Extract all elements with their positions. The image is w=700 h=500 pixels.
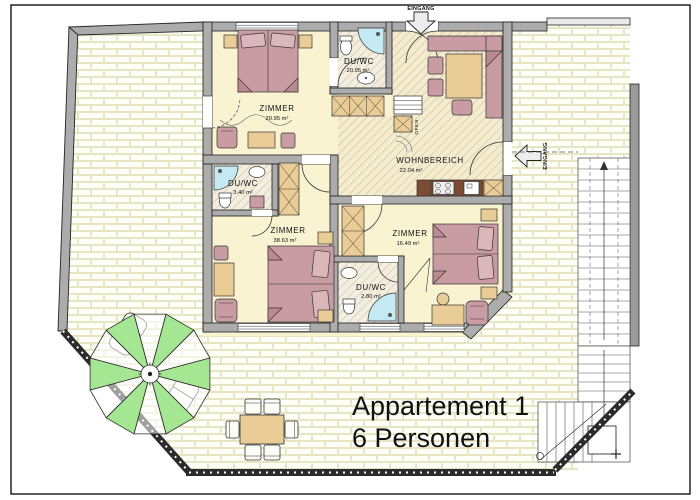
entrance-right-label: EINGANG (543, 142, 549, 169)
floor-plan-page: EINGANG EINGANG (0, 0, 700, 500)
room-label-zimmer-sw-area: 38.63 m² (274, 238, 297, 244)
room-label-zimmer-se-area: 16.49 m² (397, 241, 420, 247)
room-label-wohnbereich-area: 22.04 m² (400, 168, 423, 174)
floor-plan-svg: EINGANG EINGANG (0, 0, 700, 500)
room-label-duwc-top-name: DU/WC (344, 57, 374, 66)
room-label-duwc-top-area: 20.95 m² (347, 68, 370, 74)
room-label-duwc-south-area: 2.80 m² (361, 294, 381, 300)
room-label-wohnbereich-name: WOHNBEREICH (396, 156, 464, 165)
oven-label: OFEN (414, 119, 420, 134)
room-label-zimmer-nw-name: ZIMMER (259, 104, 294, 113)
room-label-zimmer-sw-name: ZIMMER (270, 226, 305, 235)
room-label-duwc-west-area: 3.40 m² (233, 190, 253, 196)
top-right-railing (547, 18, 630, 25)
room-label-zimmer-nw-area: 20.95 m² (266, 116, 289, 122)
parasol-icon (90, 311, 210, 434)
staircase-right-icon (578, 158, 630, 346)
room-label-zimmer-se-name: ZIMMER (392, 229, 427, 238)
wardrobe-hall (332, 96, 384, 116)
entrance-top-label: EINGANG (407, 6, 434, 12)
room-label-duwc-south-name: DU/WC (356, 283, 386, 292)
apartment-title-line1: Appartement 1 (352, 391, 529, 421)
room-label-duwc-west-name: DU/WC (228, 179, 258, 188)
right-wall-bar (630, 84, 639, 346)
apartment-title-line2: 6 Personen (352, 423, 490, 453)
